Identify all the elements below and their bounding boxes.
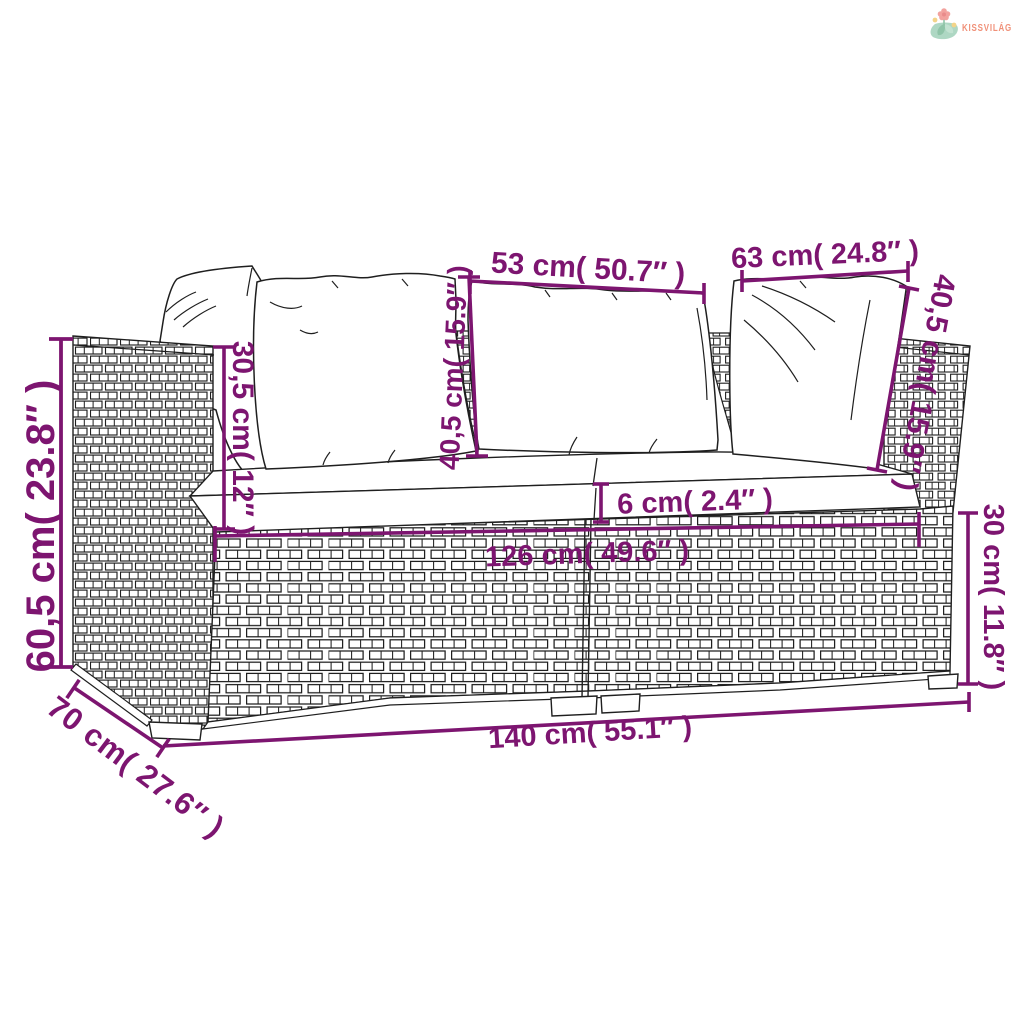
svg-text:KISSVILÁG: KISSVILÁG	[962, 21, 1012, 34]
svg-text:140 cm( 55.1″ ): 140 cm( 55.1″ )	[487, 711, 693, 755]
svg-text:30,5 cm( 12″ ): 30,5 cm( 12″ )	[226, 341, 259, 535]
svg-text:6 cm( 2.4″ ): 6 cm( 2.4″ )	[617, 483, 774, 520]
svg-text:63 cm( 24.8″ ): 63 cm( 24.8″ )	[730, 235, 919, 275]
svg-text:60,5 cm( 23.8″ ): 60,5 cm( 23.8″ )	[19, 380, 63, 673]
svg-text:30 cm( 11.8″ ): 30 cm( 11.8″ )	[977, 504, 1009, 690]
